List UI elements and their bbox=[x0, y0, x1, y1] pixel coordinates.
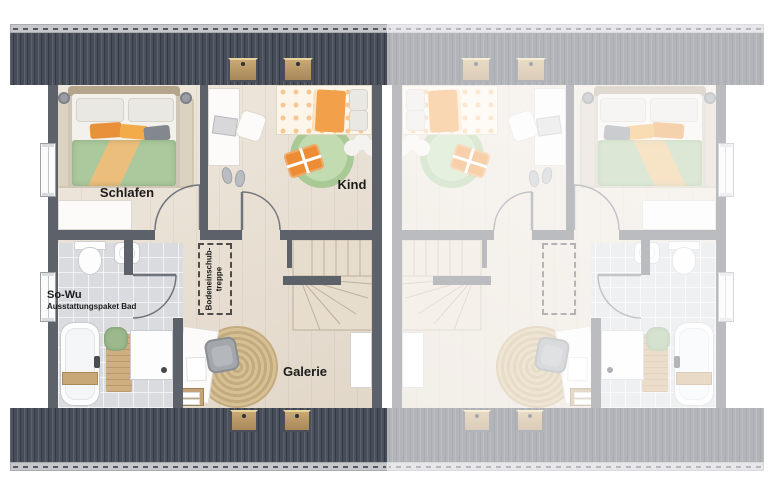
roof-band-top bbox=[10, 31, 387, 85]
double-bed bbox=[68, 86, 180, 188]
wall-segment bbox=[58, 230, 155, 240]
pillow bbox=[349, 89, 368, 111]
stair-handrail bbox=[283, 276, 341, 285]
orange-cushion bbox=[90, 122, 123, 139]
skylight-handle bbox=[296, 62, 300, 66]
armchair bbox=[203, 335, 240, 374]
label-so-wu: So-Wu bbox=[47, 289, 147, 301]
attic-stair-label-line1: Bodeneinschub- bbox=[205, 244, 215, 314]
green-towel bbox=[104, 327, 128, 351]
skylight-handle bbox=[295, 414, 299, 418]
label-ausstattungspaket-bad: Ausstattungspaket Bad bbox=[47, 302, 177, 311]
pillow bbox=[128, 98, 174, 122]
label-kind: Kind bbox=[322, 177, 382, 192]
toilet bbox=[78, 247, 102, 275]
roof-ridge-bottom bbox=[10, 462, 389, 471]
bath-caddy bbox=[62, 372, 98, 385]
window-sill bbox=[42, 144, 54, 147]
child-bed bbox=[276, 85, 372, 135]
bath-wall-upper bbox=[124, 240, 133, 275]
armchair-seat bbox=[211, 344, 234, 367]
window-sill bbox=[42, 318, 54, 321]
skylight-handle bbox=[241, 62, 245, 66]
window bbox=[40, 143, 56, 197]
orange-blanket bbox=[312, 89, 346, 133]
bedside-lamp bbox=[180, 92, 192, 104]
pillow bbox=[76, 98, 124, 122]
skylight-window bbox=[283, 58, 313, 82]
plan-canvas: Bodeneinschub- treppe bbox=[0, 0, 775, 493]
tub-inner bbox=[65, 328, 95, 400]
bath-wall-lower bbox=[173, 318, 183, 408]
tub-faucet bbox=[94, 356, 100, 368]
unit-left: Bodeneinschub- treppe bbox=[10, 0, 387, 493]
pillow bbox=[349, 110, 368, 131]
party-wall bbox=[372, 78, 382, 410]
ridge-dashes bbox=[13, 28, 386, 30]
exterior-wall bbox=[48, 78, 58, 410]
label-schlafen: Schlafen bbox=[87, 185, 167, 200]
attic-stair-label-line2: treppe bbox=[215, 244, 225, 314]
paper-sheet bbox=[186, 357, 207, 382]
green-duvet bbox=[72, 140, 176, 186]
child-desk bbox=[208, 88, 240, 166]
shower-tray bbox=[130, 330, 173, 380]
roof-ridge-top bbox=[10, 24, 389, 33]
shower-drain bbox=[161, 367, 167, 373]
window-sill bbox=[42, 193, 54, 196]
attic-stair-label: Bodeneinschub- treppe bbox=[205, 244, 226, 314]
attic-stair-dashed-box: Bodeneinschub- treppe bbox=[198, 243, 232, 315]
stair-wall-stub bbox=[287, 240, 292, 268]
bedroom-wardrobe bbox=[58, 200, 132, 230]
room-divider-wall bbox=[200, 80, 208, 240]
ridge-dashes bbox=[13, 466, 386, 468]
towel bbox=[180, 392, 200, 398]
skylight-handle bbox=[242, 414, 246, 418]
wall-segment bbox=[280, 230, 372, 240]
child-door-arc bbox=[242, 192, 280, 230]
skylight-window bbox=[283, 410, 311, 432]
label-galerie: Galerie bbox=[265, 364, 345, 379]
towel bbox=[180, 399, 200, 405]
window-sill bbox=[42, 273, 54, 276]
mirrored-unit-fade-overlay bbox=[387, 0, 775, 493]
laptop bbox=[212, 115, 238, 136]
skylight-window bbox=[230, 410, 258, 432]
skylight-window bbox=[228, 58, 258, 82]
bedside-lamp bbox=[58, 92, 70, 104]
window-pane bbox=[48, 147, 49, 193]
roof-band-bottom bbox=[10, 408, 387, 462]
